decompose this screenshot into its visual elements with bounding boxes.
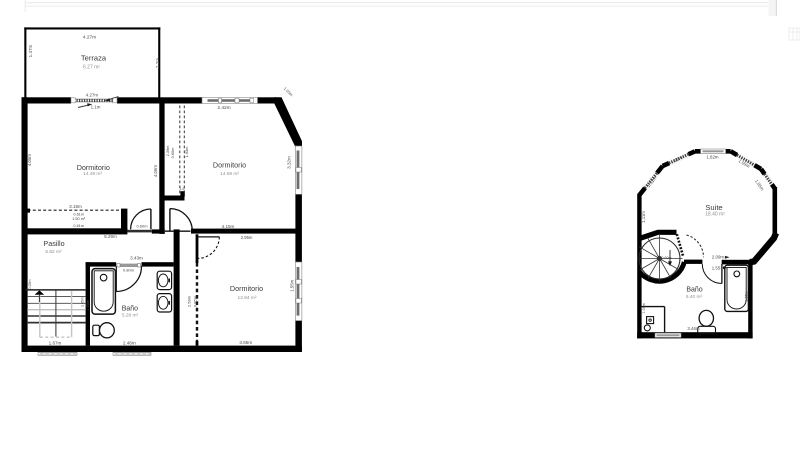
svg-text:2.58m: 2.58m bbox=[187, 295, 192, 307]
svg-text:2.48m: 2.48m bbox=[123, 340, 136, 345]
svg-text:1.93m: 1.93m bbox=[184, 147, 189, 158]
svg-text:0.25m: 0.25m bbox=[28, 280, 32, 290]
svg-text:Dormitorio: Dormitorio bbox=[230, 284, 263, 293]
svg-text:0.80m: 0.80m bbox=[123, 268, 135, 273]
svg-text:0.85m: 0.85m bbox=[192, 295, 197, 307]
svg-text:0.60m: 0.60m bbox=[170, 148, 175, 159]
svg-text:4.06m: 4.06m bbox=[153, 165, 158, 178]
svg-text:1.05m: 1.05m bbox=[81, 297, 85, 307]
svg-text:1.62m: 1.62m bbox=[706, 155, 719, 160]
svg-text:1.50 m²: 1.50 m² bbox=[72, 217, 86, 221]
svg-text:1.1m: 1.1m bbox=[91, 105, 101, 110]
svg-text:Dormitorio: Dormitorio bbox=[213, 161, 246, 170]
svg-text:14.49 m²: 14.49 m² bbox=[83, 171, 102, 177]
svg-text:3.32m: 3.32m bbox=[287, 156, 292, 169]
svg-text:3.16m: 3.16m bbox=[69, 204, 82, 209]
svg-text:Pasillo: Pasillo bbox=[43, 239, 64, 248]
svg-text:1.55m: 1.55m bbox=[289, 279, 294, 292]
svg-text:2.95m: 2.95m bbox=[241, 235, 253, 240]
svg-text:12.84 m²: 12.84 m² bbox=[238, 295, 257, 301]
svg-text:1.47m: 1.47m bbox=[28, 44, 33, 57]
svg-text:5.82 m²: 5.82 m² bbox=[45, 249, 62, 255]
svg-text:3.43m: 3.43m bbox=[130, 256, 143, 261]
svg-text:1.55m: 1.55m bbox=[744, 291, 748, 302]
svg-text:5.29m: 5.29m bbox=[104, 234, 117, 239]
svg-text:Baño: Baño bbox=[122, 306, 138, 313]
svg-text:1.50m: 1.50m bbox=[86, 300, 90, 311]
svg-text:2.09m: 2.09m bbox=[712, 255, 725, 260]
svg-text:4.27m: 4.27m bbox=[83, 35, 96, 41]
svg-text:2.42m: 2.42m bbox=[217, 105, 230, 111]
svg-text:14.59 m²: 14.59 m² bbox=[220, 171, 239, 177]
svg-text:0.60m: 0.60m bbox=[136, 223, 148, 228]
svg-text:4.15m: 4.15m bbox=[222, 224, 235, 229]
svg-text:Terraza: Terraza bbox=[81, 54, 107, 63]
svg-text:0.61m: 0.61m bbox=[73, 224, 84, 228]
svg-text:Dormitorio: Dormitorio bbox=[77, 163, 110, 172]
svg-text:18.40 m²: 18.40 m² bbox=[705, 211, 725, 217]
svg-text:1.67m: 1.67m bbox=[49, 340, 62, 345]
svg-text:5.28 m²: 5.28 m² bbox=[122, 312, 139, 318]
svg-text:Baño: Baño bbox=[686, 287, 702, 294]
svg-text:4.27m: 4.27m bbox=[86, 92, 99, 97]
svg-text:3.46m: 3.46m bbox=[687, 326, 700, 331]
svg-text:6.40 m²: 6.40 m² bbox=[686, 294, 703, 300]
svg-text:1.05m: 1.05m bbox=[642, 303, 646, 314]
svg-text:3.65m: 3.65m bbox=[239, 340, 252, 345]
svg-text:6.27 m²: 6.27 m² bbox=[83, 64, 100, 70]
svg-text:2.2m: 2.2m bbox=[155, 58, 160, 68]
svg-text:4.05m: 4.05m bbox=[27, 154, 32, 167]
svg-text:1.55: 1.55 bbox=[712, 266, 721, 271]
